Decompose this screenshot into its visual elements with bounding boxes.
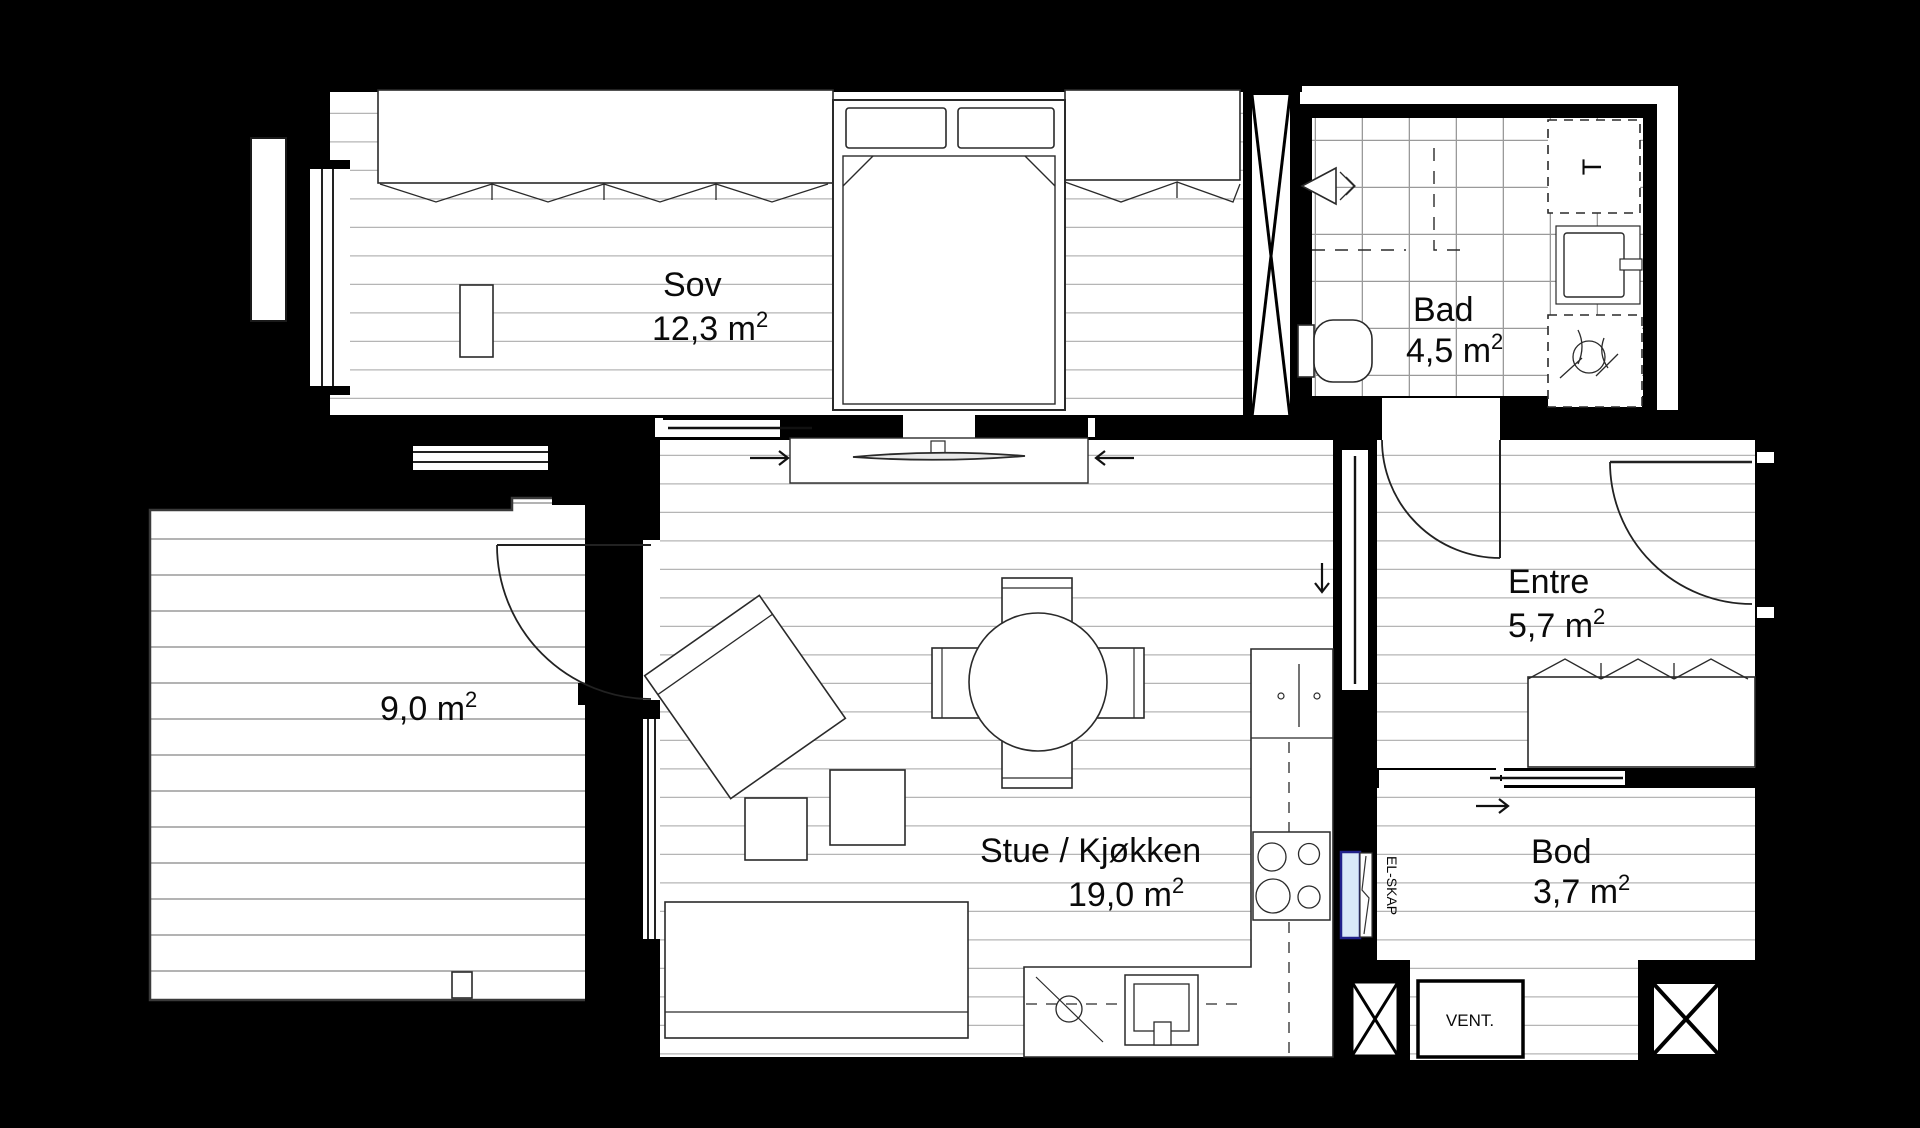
room-balcony-area: 9,0 m2	[380, 687, 477, 728]
room-stue-area: 19,0 m2	[1068, 873, 1184, 914]
vent-label: VENT.	[1446, 1011, 1494, 1030]
tv-mount	[931, 441, 945, 453]
shaft-box-large	[1652, 982, 1720, 1056]
nightstand	[460, 285, 493, 357]
room-sov-area: 12,3 m2	[652, 307, 768, 348]
room-balcony-floor	[150, 498, 585, 1000]
side-table	[830, 770, 905, 845]
bed	[833, 100, 1065, 410]
room-bad-area: 4,5 m2	[1406, 329, 1503, 370]
shower-icon	[1548, 315, 1642, 407]
sliding-door-entre	[1342, 450, 1368, 690]
sofa	[665, 902, 968, 1038]
pillow	[846, 108, 946, 148]
el-skap-label: EL-SKAP	[1384, 856, 1400, 915]
wardrobe	[1065, 90, 1240, 180]
toilet-icon	[1298, 320, 1372, 382]
balcony-post	[452, 972, 472, 998]
wardrobe	[378, 90, 833, 183]
floor-plan-page: Sov 12,3 m2 Bad 4,5 m2 9,0 m2 Stue / Kjø…	[0, 0, 1920, 1128]
floor-plan: Sov 12,3 m2 Bad 4,5 m2 9,0 m2 Stue / Kjø…	[0, 0, 1920, 1128]
wall-shaft-left	[1243, 90, 1252, 420]
wall-left-upper	[312, 73, 330, 165]
side-table	[745, 798, 807, 860]
cooktop-icon	[1253, 832, 1330, 920]
room-entre-label: Entre	[1508, 563, 1589, 601]
duvet	[843, 156, 1055, 404]
sliding-door-bod	[1379, 768, 1625, 788]
room-sov-label: Sov	[663, 266, 722, 304]
tv-sideboard	[790, 438, 1088, 483]
window-bedroom-balcony	[404, 446, 557, 470]
window-bedroom-left	[310, 160, 350, 395]
pillow	[958, 108, 1054, 148]
el-skap-cabinet	[1341, 852, 1372, 938]
wall-bottom	[643, 1057, 1377, 1092]
bathroom-sink	[1556, 226, 1642, 304]
washer-label: T	[1577, 159, 1607, 176]
room-bad-label: Bad	[1413, 291, 1474, 329]
room-bod-area: 3,7 m2	[1533, 870, 1630, 911]
wall-left-seg3	[585, 945, 660, 1060]
exterior-sill	[251, 138, 286, 321]
oven-icon	[1125, 975, 1198, 1045]
window-living-left	[643, 713, 660, 945]
room-bod-label: Bod	[1531, 833, 1592, 871]
room-entre-area: 5,7 m2	[1508, 604, 1605, 645]
dining-table	[969, 613, 1107, 751]
room-stue-label: Stue / Kjøkken	[980, 832, 1201, 870]
shaft-box-small	[1352, 982, 1398, 1056]
wall-entre-top	[1657, 410, 1792, 440]
wall-top	[312, 73, 1302, 92]
wall-left-seg1	[643, 505, 660, 540]
